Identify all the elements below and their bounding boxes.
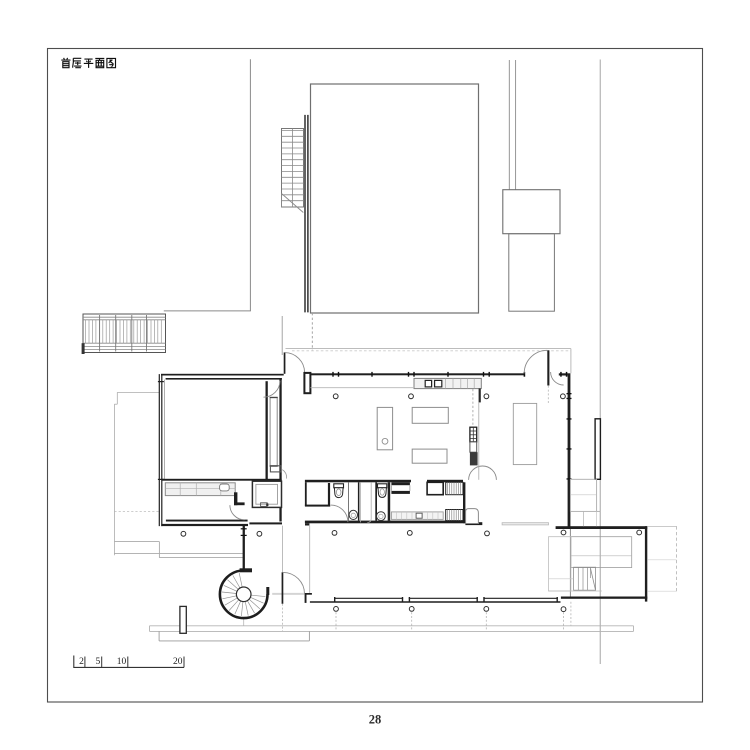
svg-text:20: 20 bbox=[173, 657, 183, 667]
svg-text:28: 28 bbox=[369, 713, 382, 727]
svg-text:2: 2 bbox=[79, 657, 84, 667]
svg-text:5: 5 bbox=[96, 657, 101, 667]
svg-text:10: 10 bbox=[117, 657, 127, 667]
